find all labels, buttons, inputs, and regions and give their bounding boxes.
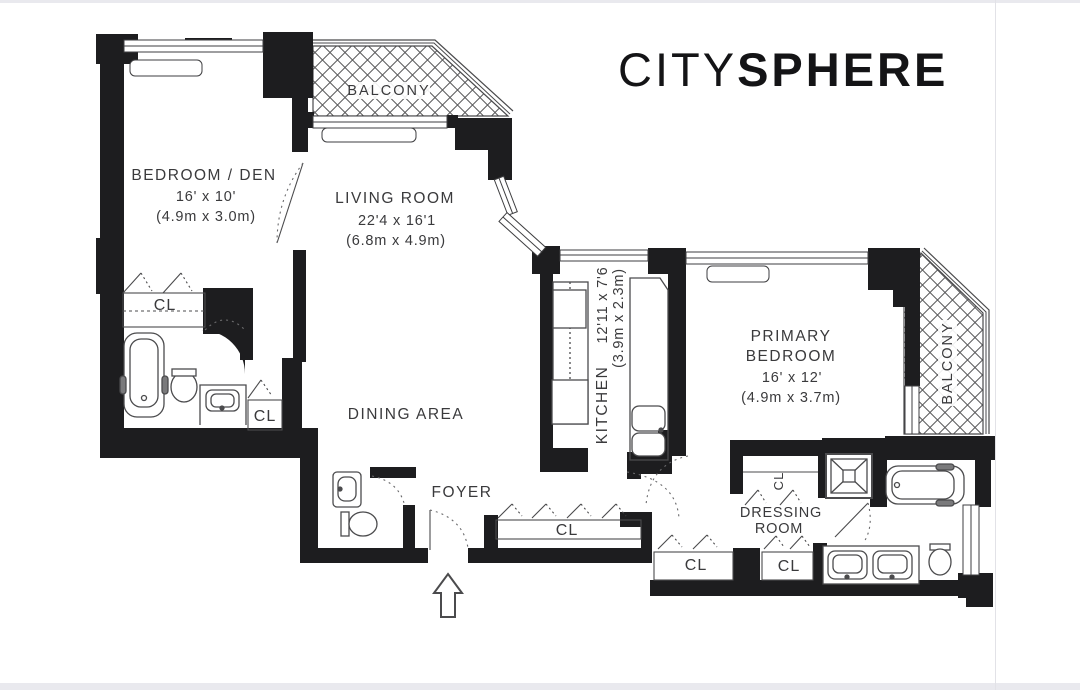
label-living-room-ft: 22'4 x 16'1 (358, 213, 436, 229)
wall-longcl-post (641, 512, 652, 563)
kitchen-appliance-1 (553, 290, 586, 328)
toilet-primary (929, 549, 951, 575)
wall-bedroom-south (730, 440, 822, 456)
label-dressing-1: DRESSING (740, 505, 822, 521)
label-balcony-top: BALCONY (347, 83, 430, 99)
brand-logo-bold: SPHERE (737, 43, 948, 96)
floorplan-drawing: BEDROOM / DEN 16' x 10' (4.9m x 3.0m) LI… (0, 0, 1080, 690)
sill-primary (707, 266, 769, 282)
label-bedroom-den: BEDROOM / DEN (131, 167, 276, 184)
wall-divider-lower (293, 250, 306, 362)
door-leaf-primary-bath (835, 503, 868, 537)
label-foyer: FOYER (432, 484, 493, 501)
toilet-powder (349, 512, 377, 536)
label-living-room-m: (6.8m x 4.9m) (346, 233, 446, 249)
label-dining-area: DINING AREA (348, 406, 464, 423)
toilet-powder-tank (341, 512, 349, 536)
label-primary-m: (4.9m x 3.7m) (741, 390, 841, 406)
label-cl-bath: CL (254, 408, 276, 425)
label-primary-1: PRIMARY (751, 328, 832, 345)
label-kitchen: KITCHEN (594, 366, 611, 445)
label-kitchen-ft: 12'11 x 7'6 (595, 267, 611, 344)
bath-door-leaf (201, 330, 245, 374)
wall-bathcl-east (282, 358, 302, 432)
label-dressing-2: ROOM (755, 521, 803, 537)
door-swing-powder (372, 476, 405, 507)
sill-living (322, 128, 416, 142)
walls (96, 32, 995, 607)
label-cl-bedroom: CL (154, 297, 176, 314)
wall-bath2-east-upper (975, 455, 991, 507)
label-living-room: LIVING ROOM (335, 190, 455, 207)
floorplan-page: CITYSPHERE (0, 0, 1080, 690)
wall-powder-north (370, 467, 416, 478)
door-swing-primary-bath (864, 503, 870, 542)
wall-powder-east (403, 505, 415, 550)
wall-top-column (263, 32, 313, 98)
kitchen-appliance-2 (552, 380, 588, 424)
label-bedroom-den-ft: 16' x 10' (176, 189, 236, 205)
wall-powder-west (300, 458, 318, 563)
brand-logo: CITYSPHERE (618, 46, 978, 93)
balcony-top-deck (307, 40, 513, 116)
window-bay-upper (494, 176, 517, 215)
wall-dressing-west (730, 456, 743, 494)
wall-left-pier (96, 238, 124, 294)
wall-bedroom-east-upper (905, 300, 920, 386)
label-cl-dressing: CL (771, 472, 786, 491)
bottom-letterbox (0, 683, 1080, 690)
entry-arrow (434, 574, 462, 617)
image-right-edge (995, 0, 996, 690)
sill-bedroom (130, 60, 202, 76)
label-kitchen-m: (3.9m x 2.3m) (611, 268, 627, 368)
brand-logo-light: CITY (618, 43, 737, 96)
label-balcony-right: BALCONY (940, 321, 956, 404)
shower (826, 454, 872, 498)
top-letterbox (0, 0, 1080, 3)
label-primary-ft: 16' x 12' (762, 370, 822, 386)
door-swing-entry (430, 510, 468, 548)
wall-bath-south (100, 428, 318, 458)
window-bay-lower (499, 213, 546, 257)
wall-kitchen-sw (540, 448, 588, 472)
kitchen-sink-1 (632, 406, 665, 431)
door-leaf-bedroom-den (277, 163, 303, 243)
label-bedroom-den-m: (4.9m x 3.0m) (156, 209, 256, 225)
wall-kitchen-east (668, 252, 686, 456)
wall-lr-ne-step (455, 118, 512, 180)
label-cl-foyer: CL (556, 522, 578, 539)
label-cl-hall-2: CL (778, 558, 800, 575)
kitchen-sink-2 (632, 433, 665, 456)
wall-kitchen-west (540, 252, 553, 448)
wall-bedroom-ne-step (868, 248, 920, 307)
label-primary-2: BEDROOM (746, 348, 837, 365)
label-kitchen-group: KITCHEN 12'11 x 7'6 (3.9m x 2.3m) (594, 267, 627, 445)
label-cl-hall-1: CL (685, 557, 707, 574)
wall-cl-post-mid (733, 548, 760, 593)
wall-entry-left (318, 548, 428, 563)
